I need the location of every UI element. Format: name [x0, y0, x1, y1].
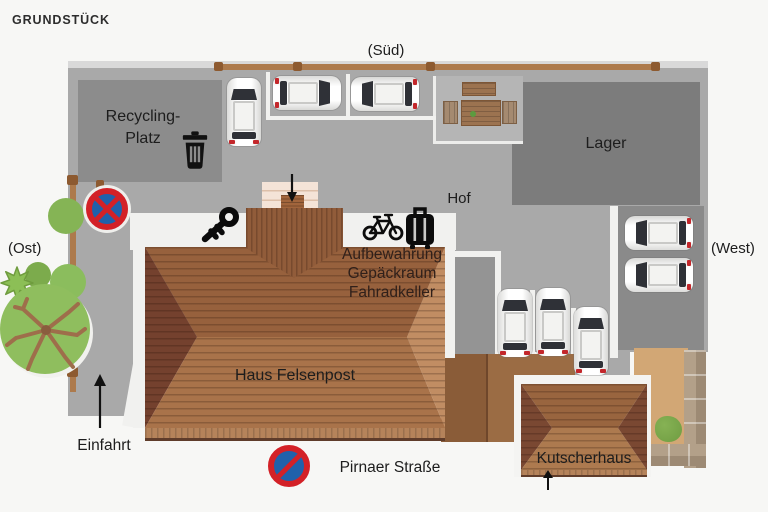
stone-path: [648, 444, 706, 466]
fence-post: [426, 62, 435, 71]
fence-post: [293, 62, 302, 71]
tree-canopy-small: [48, 198, 84, 234]
compass-west: (West): [711, 240, 755, 259]
car-roof: [648, 264, 678, 286]
car-windshield: [636, 220, 647, 246]
fence-post: [214, 62, 223, 71]
key-icon: [198, 206, 240, 246]
car-taillight: [576, 369, 582, 373]
storage-label-line2: Gepäckraum: [328, 264, 456, 283]
storage-label-line1: Aufbewahrung: [328, 245, 456, 264]
street-label: Pirnaer Straße: [325, 458, 455, 477]
car-roof: [288, 82, 318, 104]
parking-line: [266, 72, 270, 118]
car-taillight: [562, 350, 568, 354]
car-roof: [580, 330, 602, 360]
parked-car: [574, 307, 608, 375]
bicycle-icon: [362, 211, 404, 241]
garden-bush: [655, 416, 682, 442]
sign-slash-bar: [277, 454, 302, 479]
storage-label-line3: Fahradkeller: [328, 283, 456, 302]
roof-eave-edge: [145, 438, 445, 441]
car-roof: [648, 222, 678, 244]
site-plan: GRUNDSTÜCK (Süd) (Ost) (West) Recycling-…: [0, 0, 768, 512]
car-taillight: [600, 369, 606, 373]
recycling-label: Recycling- Platz: [70, 106, 216, 150]
picnic-bench-top: [462, 82, 496, 96]
car-rear-window: [280, 81, 287, 105]
recycling-label-line1: Recycling-: [70, 106, 216, 128]
car-taillight: [275, 78, 279, 84]
parked-car: [625, 258, 693, 292]
car-roof: [504, 312, 526, 342]
parking-line: [266, 116, 436, 120]
compass-east: (Ost): [8, 240, 41, 259]
parked-car: [227, 78, 261, 146]
car-rear-window: [541, 342, 565, 349]
hof-label: Hof: [434, 190, 484, 209]
car-windshield: [231, 89, 257, 100]
fence-post: [651, 62, 660, 71]
haus-felsenpost-label: Haus Felsenpost: [215, 366, 375, 386]
car-roof: [374, 83, 404, 105]
parked-car: [498, 289, 532, 357]
picnic-chair-right: [502, 101, 517, 124]
parked-car: [351, 77, 419, 111]
car-rear-window: [579, 361, 603, 368]
parked-car: [625, 216, 693, 250]
entrance-portico: [246, 208, 343, 248]
kutscherhaus-up-arrow: [541, 468, 555, 492]
parked-car: [536, 288, 570, 356]
kutscherhaus-label: Kutscherhaus: [521, 449, 647, 468]
car-taillight: [687, 260, 691, 266]
roof-eave-edge: [521, 475, 647, 477]
car-windshield: [362, 81, 373, 107]
deck-left: [441, 354, 486, 442]
wall-vertical: [610, 206, 618, 358]
einfahrt-up-arrow: [92, 372, 108, 430]
plant-dot: [470, 111, 476, 117]
parked-car: [273, 76, 341, 110]
fence-top: [214, 64, 660, 70]
parking-line: [346, 74, 350, 118]
car-taillight: [687, 284, 691, 290]
car-windshield: [540, 299, 566, 310]
car-taillight: [253, 140, 259, 144]
car-taillight: [413, 103, 417, 109]
fence-post: [67, 175, 78, 185]
car-rear-window: [679, 221, 686, 245]
car-taillight: [275, 102, 279, 108]
tree-branches: [3, 287, 87, 371]
page-title: GRUNDSTÜCK: [12, 13, 110, 29]
car-windshield: [636, 262, 647, 288]
car-rear-window: [503, 343, 527, 350]
car-windshield: [578, 318, 604, 329]
entrance-down-arrow: [285, 172, 299, 204]
car-taillight: [229, 140, 235, 144]
einfahrt-label: Einfahrt: [64, 436, 144, 455]
car-taillight: [687, 218, 691, 224]
compass-south: (Süd): [356, 42, 416, 61]
storage-label: Aufbewahrung Gepäckraum Fahradkeller: [328, 245, 456, 302]
car-roof: [233, 101, 255, 131]
car-rear-window: [679, 263, 686, 287]
car-taillight: [413, 79, 417, 85]
roof-eave: [145, 428, 445, 438]
car-windshield: [502, 300, 528, 311]
car-taillight: [500, 351, 506, 355]
tree-trunk: [41, 325, 51, 335]
picnic-table: [461, 100, 501, 126]
car-roof: [542, 311, 564, 341]
picnic-chair-left: [443, 101, 458, 124]
no-parking-sign: [268, 445, 310, 487]
car-rear-window: [232, 132, 256, 139]
lager-label: Lager: [546, 134, 666, 154]
walkway-left: [133, 250, 145, 428]
car-windshield: [319, 80, 330, 106]
recycling-label-line2: Platz: [70, 128, 216, 150]
car-taillight: [538, 350, 544, 354]
car-taillight: [687, 242, 691, 248]
car-rear-window: [405, 82, 412, 106]
no-stopping-sign: [86, 188, 128, 230]
car-taillight: [524, 351, 530, 355]
